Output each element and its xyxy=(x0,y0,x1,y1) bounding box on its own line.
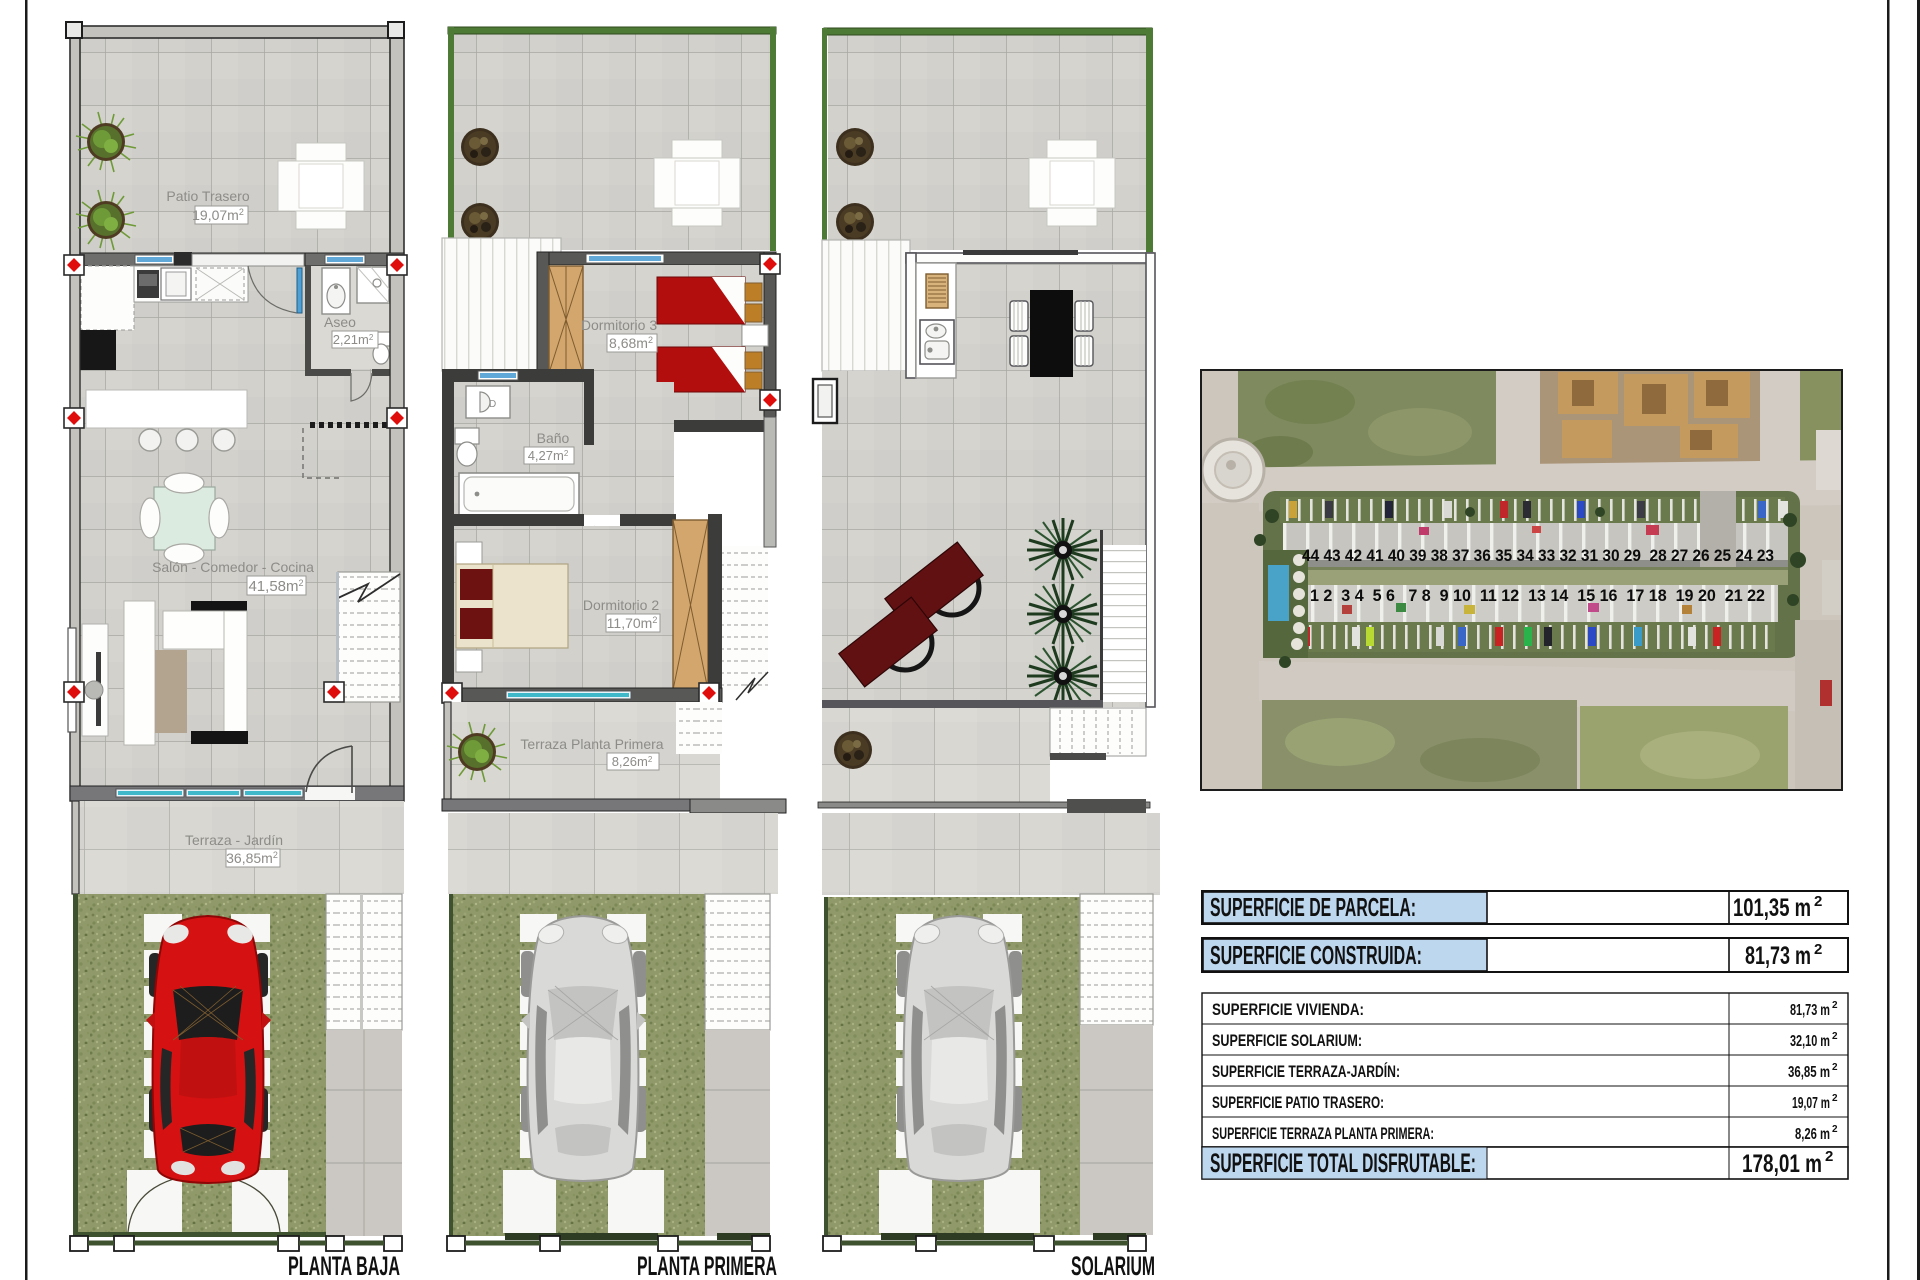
svg-text:Dormitorio 2: Dormitorio 2 xyxy=(583,597,659,613)
svg-text:36,85m2: 36,85m2 xyxy=(226,850,278,866)
svg-text:2: 2 xyxy=(1832,1093,1838,1104)
svg-text:2: 2 xyxy=(1832,1031,1838,1042)
svg-text:8,68m2: 8,68m2 xyxy=(609,335,653,351)
svg-text:101,35 m: 101,35 m xyxy=(1733,894,1811,922)
svg-text:SUPERFICIE SOLARIUM:: SUPERFICIE SOLARIUM: xyxy=(1212,1031,1362,1050)
svg-text:32,10 m: 32,10 m xyxy=(1790,1033,1830,1050)
svg-text:D: D xyxy=(489,399,496,410)
svg-text:Terraza Planta Primera: Terraza Planta Primera xyxy=(520,736,663,752)
svg-text:8,26m2: 8,26m2 xyxy=(612,754,653,769)
svg-text:2: 2 xyxy=(1814,941,1822,958)
svg-text:SUPERFICIE VIVIENDA:: SUPERFICIE VIVIENDA: xyxy=(1212,1000,1364,1019)
svg-text:Salón - Comedor - Cocina: Salón - Comedor - Cocina xyxy=(152,559,314,575)
svg-text:SUPERFICIE TERRAZA PLANTA PRIM: SUPERFICIE TERRAZA PLANTA PRIMERA: xyxy=(1212,1124,1434,1143)
svg-text:19,07 m: 19,07 m xyxy=(1792,1095,1830,1112)
svg-text:2: 2 xyxy=(1832,1000,1838,1011)
svg-text:36,85 m: 36,85 m xyxy=(1788,1064,1830,1081)
svg-text:4,27m2: 4,27m2 xyxy=(528,448,569,463)
svg-text:Baño: Baño xyxy=(537,430,570,446)
svg-text:2: 2 xyxy=(1832,1062,1838,1073)
svg-text:178,01 m: 178,01 m xyxy=(1742,1150,1822,1178)
svg-text:PLANTA PRIMERA: PLANTA PRIMERA xyxy=(637,1251,777,1280)
svg-text:2: 2 xyxy=(1814,893,1822,910)
svg-text:44 43 42 41 40 39 38 37 36 35: 44 43 42 41 40 39 38 37 36 35 34 33 32 3… xyxy=(1302,546,1774,565)
svg-text:SOLARIUM: SOLARIUM xyxy=(1071,1251,1155,1280)
svg-text:19,07m2: 19,07m2 xyxy=(192,207,244,223)
svg-text:2,21m2: 2,21m2 xyxy=(333,332,374,347)
svg-text:8,26 m: 8,26 m xyxy=(1795,1126,1830,1143)
svg-text:2: 2 xyxy=(1825,1148,1833,1165)
svg-text:2: 2 xyxy=(1832,1124,1838,1135)
svg-text:PLANTA BAJA: PLANTA BAJA xyxy=(288,1251,400,1280)
svg-text:Aseo: Aseo xyxy=(324,314,356,330)
svg-text:SUPERFICIE TERRAZA-JARDÍN:: SUPERFICIE TERRAZA-JARDÍN: xyxy=(1212,1062,1400,1081)
svg-text:SUPERFICIE CONSTRUIDA:: SUPERFICIE CONSTRUIDA: xyxy=(1210,940,1422,970)
svg-text:Terraza - Jardín: Terraza - Jardín xyxy=(185,832,283,848)
svg-text:Dormitorio 3: Dormitorio 3 xyxy=(581,317,657,333)
svg-text:81,73 m: 81,73 m xyxy=(1790,1002,1830,1019)
svg-text:SUPERFICIE TOTAL DISFRUTABLE:: SUPERFICIE TOTAL DISFRUTABLE: xyxy=(1210,1148,1476,1178)
svg-text:1 2 3 4 5 6 7 8 9 10 11: 1 2 3 4 5 6 7 8 9 10 11 12 13 14 15 16 1… xyxy=(1310,586,1765,605)
svg-text:81,73 m: 81,73 m xyxy=(1745,942,1811,970)
svg-text:SUPERFICIE DE PARCELA:: SUPERFICIE DE PARCELA: xyxy=(1210,892,1416,922)
svg-text:Patio Trasero: Patio Trasero xyxy=(166,188,249,204)
svg-text:11,70m2: 11,70m2 xyxy=(607,615,658,631)
svg-text:SUPERFICIE PATIO TRASERO:: SUPERFICIE PATIO TRASERO: xyxy=(1212,1093,1384,1112)
svg-text:41,58m2: 41,58m2 xyxy=(248,578,303,595)
